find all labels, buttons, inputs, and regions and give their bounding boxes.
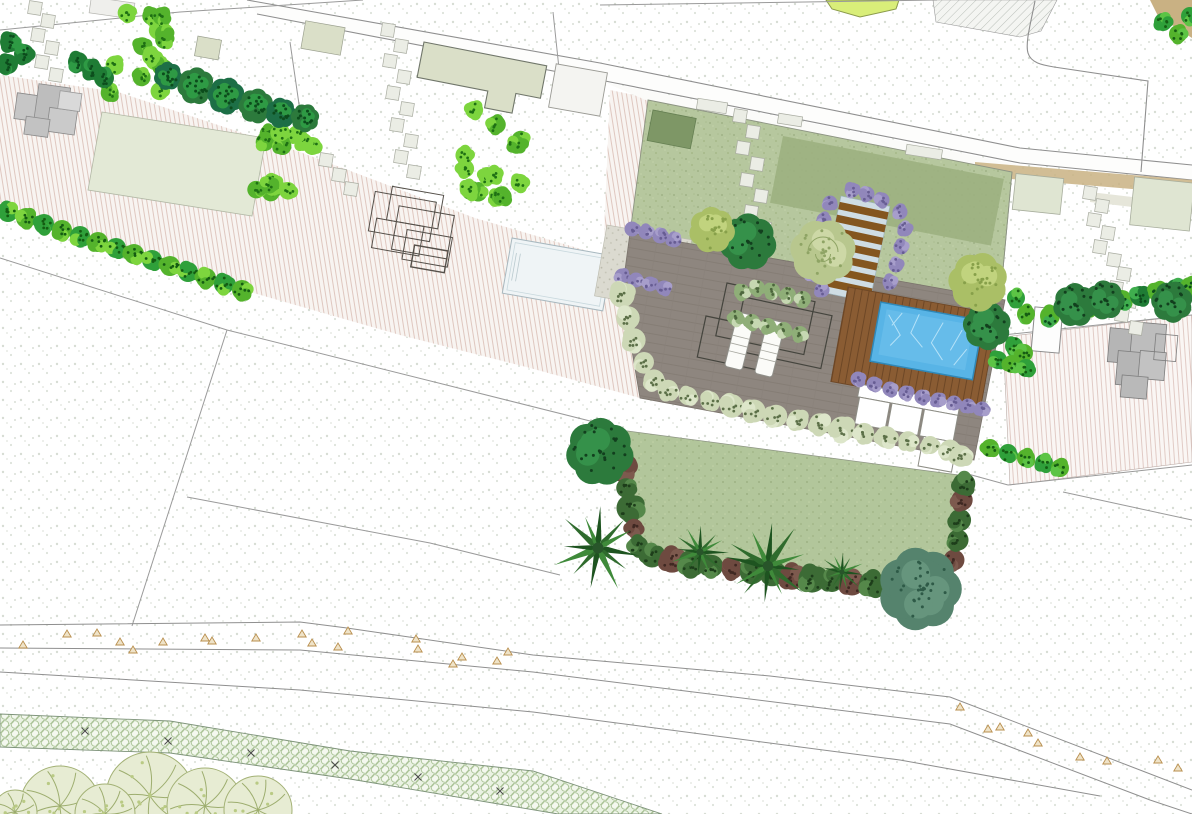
stepping-stone — [404, 134, 419, 149]
stepping-stone — [1087, 213, 1102, 228]
stepping-stone — [319, 153, 334, 168]
stepping-stone — [35, 55, 50, 70]
neighbor-lawn-pale — [1130, 177, 1192, 231]
stepping-stone — [344, 182, 359, 197]
stepping-stone — [1101, 226, 1116, 241]
stepping-stone — [1107, 253, 1122, 268]
site-plan-viewport — [0, 0, 1192, 814]
stepping-stone — [750, 157, 765, 172]
neighbor-lawn-pale — [1012, 174, 1064, 215]
stepping-stone — [332, 168, 347, 183]
stepping-stone — [1129, 321, 1144, 336]
neighbor-building-white — [549, 64, 608, 116]
stepping-stone — [754, 189, 769, 204]
stepping-stone — [383, 54, 398, 69]
stepping-stone — [381, 23, 396, 38]
stepping-stone — [1095, 199, 1110, 214]
stepping-stone — [45, 41, 60, 56]
stepping-stone — [49, 68, 64, 83]
stepping-stone — [1083, 186, 1098, 201]
garden-shed-sage — [194, 36, 221, 60]
stepping-stone — [394, 39, 409, 54]
stepping-stone — [733, 109, 748, 124]
stepping-stone — [407, 165, 422, 180]
stepping-stone — [386, 86, 401, 101]
stepping-stone — [1093, 240, 1108, 255]
stepping-stone — [400, 102, 415, 117]
site-plan-drawing — [0, 0, 1192, 814]
stepping-stone — [746, 125, 761, 140]
stepping-stone — [28, 1, 43, 16]
stepping-stone — [740, 173, 755, 188]
stepping-stone — [31, 28, 46, 43]
stepping-stone — [41, 14, 56, 29]
stepping-stone — [736, 141, 751, 156]
stepping-stone — [390, 118, 405, 133]
stepping-stone — [397, 70, 412, 85]
stepping-stone — [394, 150, 409, 165]
stepping-stone — [1117, 267, 1132, 282]
